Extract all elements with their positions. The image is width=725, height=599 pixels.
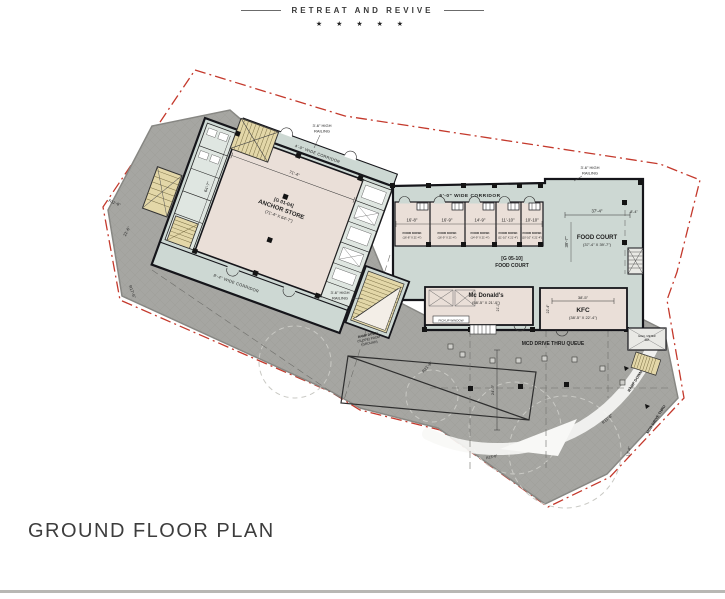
food-court-unit-name: FOOD COURT xyxy=(495,263,529,269)
kiosk-1-size: (16'-8" X 21'-4") xyxy=(403,236,422,240)
kiosk-5-name: FOOD KIOSK xyxy=(522,231,542,235)
kiosk-3-dim: 14'-9" xyxy=(475,218,486,223)
queue-dim: 24'-6" xyxy=(490,384,495,395)
elec-meter-label-2: SET xyxy=(644,338,649,342)
svg-text:3'-6" HIGH: 3'-6" HIGH xyxy=(580,165,599,170)
drive-thru-queue-label: MCD DRIVE THRU QUEUE xyxy=(522,341,585,347)
kiosk-5-size: (10'-10" X 21'-4") xyxy=(522,236,542,240)
food-corridor-label: 6'-0" WIDE CORRIDOR xyxy=(439,193,500,199)
mcdonalds-height-dim: 21'-0" xyxy=(496,302,500,311)
kiosk-3-name: FOOD KIOSK xyxy=(470,231,490,235)
food-court-right-dim: 8'-4" xyxy=(630,210,638,214)
kiosk-4-dim: 11'-10" xyxy=(501,218,514,223)
elec-meter-label: ELEC. METER xyxy=(638,334,655,338)
kiosk-2-name: FOOD KIOSK xyxy=(437,231,457,235)
bottom-divider xyxy=(0,590,725,593)
kfc-size-label: (38'-5" X 22'-4") xyxy=(569,315,598,320)
pickup-window-label: PICKUP WINDOW xyxy=(438,319,463,323)
svg-text:RAILING: RAILING xyxy=(314,129,330,134)
stair-east xyxy=(628,248,643,274)
food-court-unit-label: [G 05-10] xyxy=(501,256,523,262)
kiosk-1-name: FOOD KIOSK xyxy=(402,231,422,235)
dim-bottom: 13'-4" xyxy=(625,446,632,458)
kiosk-2-size: (16'-9" X 21'-4") xyxy=(438,236,457,240)
svg-text:3'-6" HIGH: 3'-6" HIGH xyxy=(330,290,349,295)
svg-text:RAILING: RAILING xyxy=(582,171,598,176)
svg-text:3'-6" HIGH: 3'-6" HIGH xyxy=(312,123,331,128)
kfc-height-dim: 22'-4" xyxy=(546,304,550,313)
mcdonalds-label: Mc Donald's xyxy=(468,293,504,299)
kiosk-5-dim: 10'-10" xyxy=(525,218,539,223)
food-court-height-dim: 39'-7" xyxy=(564,236,569,247)
food-court-size-label: (37'-4" X 39'-7") xyxy=(583,242,612,247)
floor-plan-svg: 71'-4" 64'-7" [G 01-04] ANCHOR STORE (71… xyxy=(0,0,725,599)
kiosk-2-dim: 16'-9" xyxy=(442,218,453,223)
kfc-label: KFC xyxy=(576,307,590,314)
kfc-width-dim: 38'-5" xyxy=(578,295,589,300)
kiosk-4-name: FOOD KIOSK xyxy=(498,231,518,235)
svg-text:RAILING: RAILING xyxy=(332,296,348,301)
page-title: GROUND FLOOR PLAN xyxy=(28,520,275,543)
food-court-width-dim: 37'-4" xyxy=(592,209,603,214)
kiosk-3-size: (14'-9" X 21'-4") xyxy=(471,236,490,240)
floor-plan-page: RETREAT AND REVIVE ★ ★ ★ ★ ★ xyxy=(0,0,725,599)
food-court-label: FOOD COURT xyxy=(577,235,618,241)
plan-area: 71'-4" 64'-7" [G 01-04] ANCHOR STORE (71… xyxy=(0,0,725,599)
kiosk-1-dim: 16'-8" xyxy=(407,218,418,223)
kiosk-4-size: (11'-10" X 21'-4") xyxy=(498,236,518,240)
